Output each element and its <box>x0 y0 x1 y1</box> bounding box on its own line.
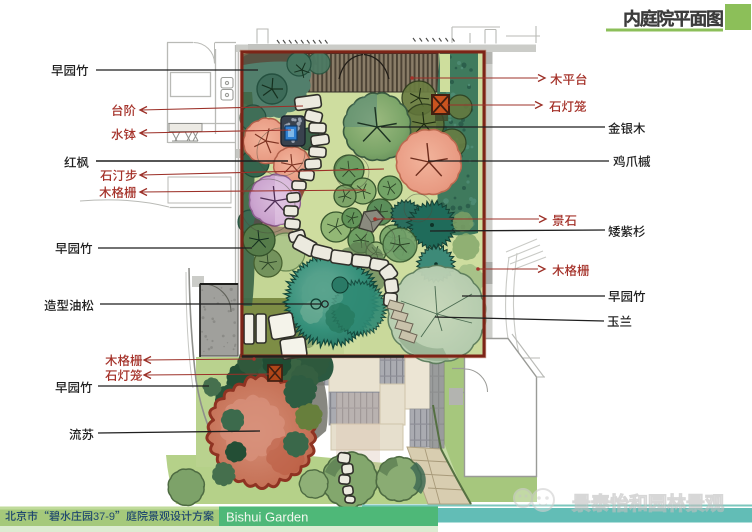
svg-text:石灯笼: 石灯笼 <box>105 365 143 384</box>
svg-text:早园竹: 早园竹 <box>608 286 646 305</box>
svg-text:景泰怡和园林景观: 景泰怡和园林景观 <box>571 489 724 516</box>
svg-text:早园竹: 早园竹 <box>51 60 89 79</box>
svg-text:金银木: 金银木 <box>608 118 646 137</box>
svg-text:早园竹: 早园竹 <box>55 238 93 257</box>
svg-text:玉兰: 玉兰 <box>607 311 632 330</box>
svg-text:台阶: 台阶 <box>111 100 137 119</box>
svg-text:流苏: 流苏 <box>69 424 94 443</box>
svg-text:鸡爪槭: 鸡爪槭 <box>613 151 651 170</box>
svg-text:石灯笼: 石灯笼 <box>549 96 587 115</box>
svg-text:木平台: 木平台 <box>550 69 588 88</box>
svg-text:内庭院平面图: 内庭院平面图 <box>623 5 723 31</box>
svg-text:Bishui Garden: Bishui Garden <box>226 510 308 525</box>
svg-text:北京市“碧水庄园37-9”庭院景观设计方案: 北京市“碧水庄园37-9”庭院景观设计方案 <box>5 508 214 524</box>
svg-text:木格栅: 木格栅 <box>552 260 590 279</box>
svg-text:造型油松: 造型油松 <box>44 295 95 314</box>
svg-text:木格栅: 木格栅 <box>99 182 137 201</box>
svg-text:红枫: 红枫 <box>64 152 90 171</box>
svg-text:景石: 景石 <box>552 210 577 229</box>
svg-text:矮紫杉: 矮紫杉 <box>608 221 646 240</box>
svg-text:早园竹: 早园竹 <box>55 377 93 396</box>
svg-text:水钵: 水钵 <box>111 124 137 143</box>
